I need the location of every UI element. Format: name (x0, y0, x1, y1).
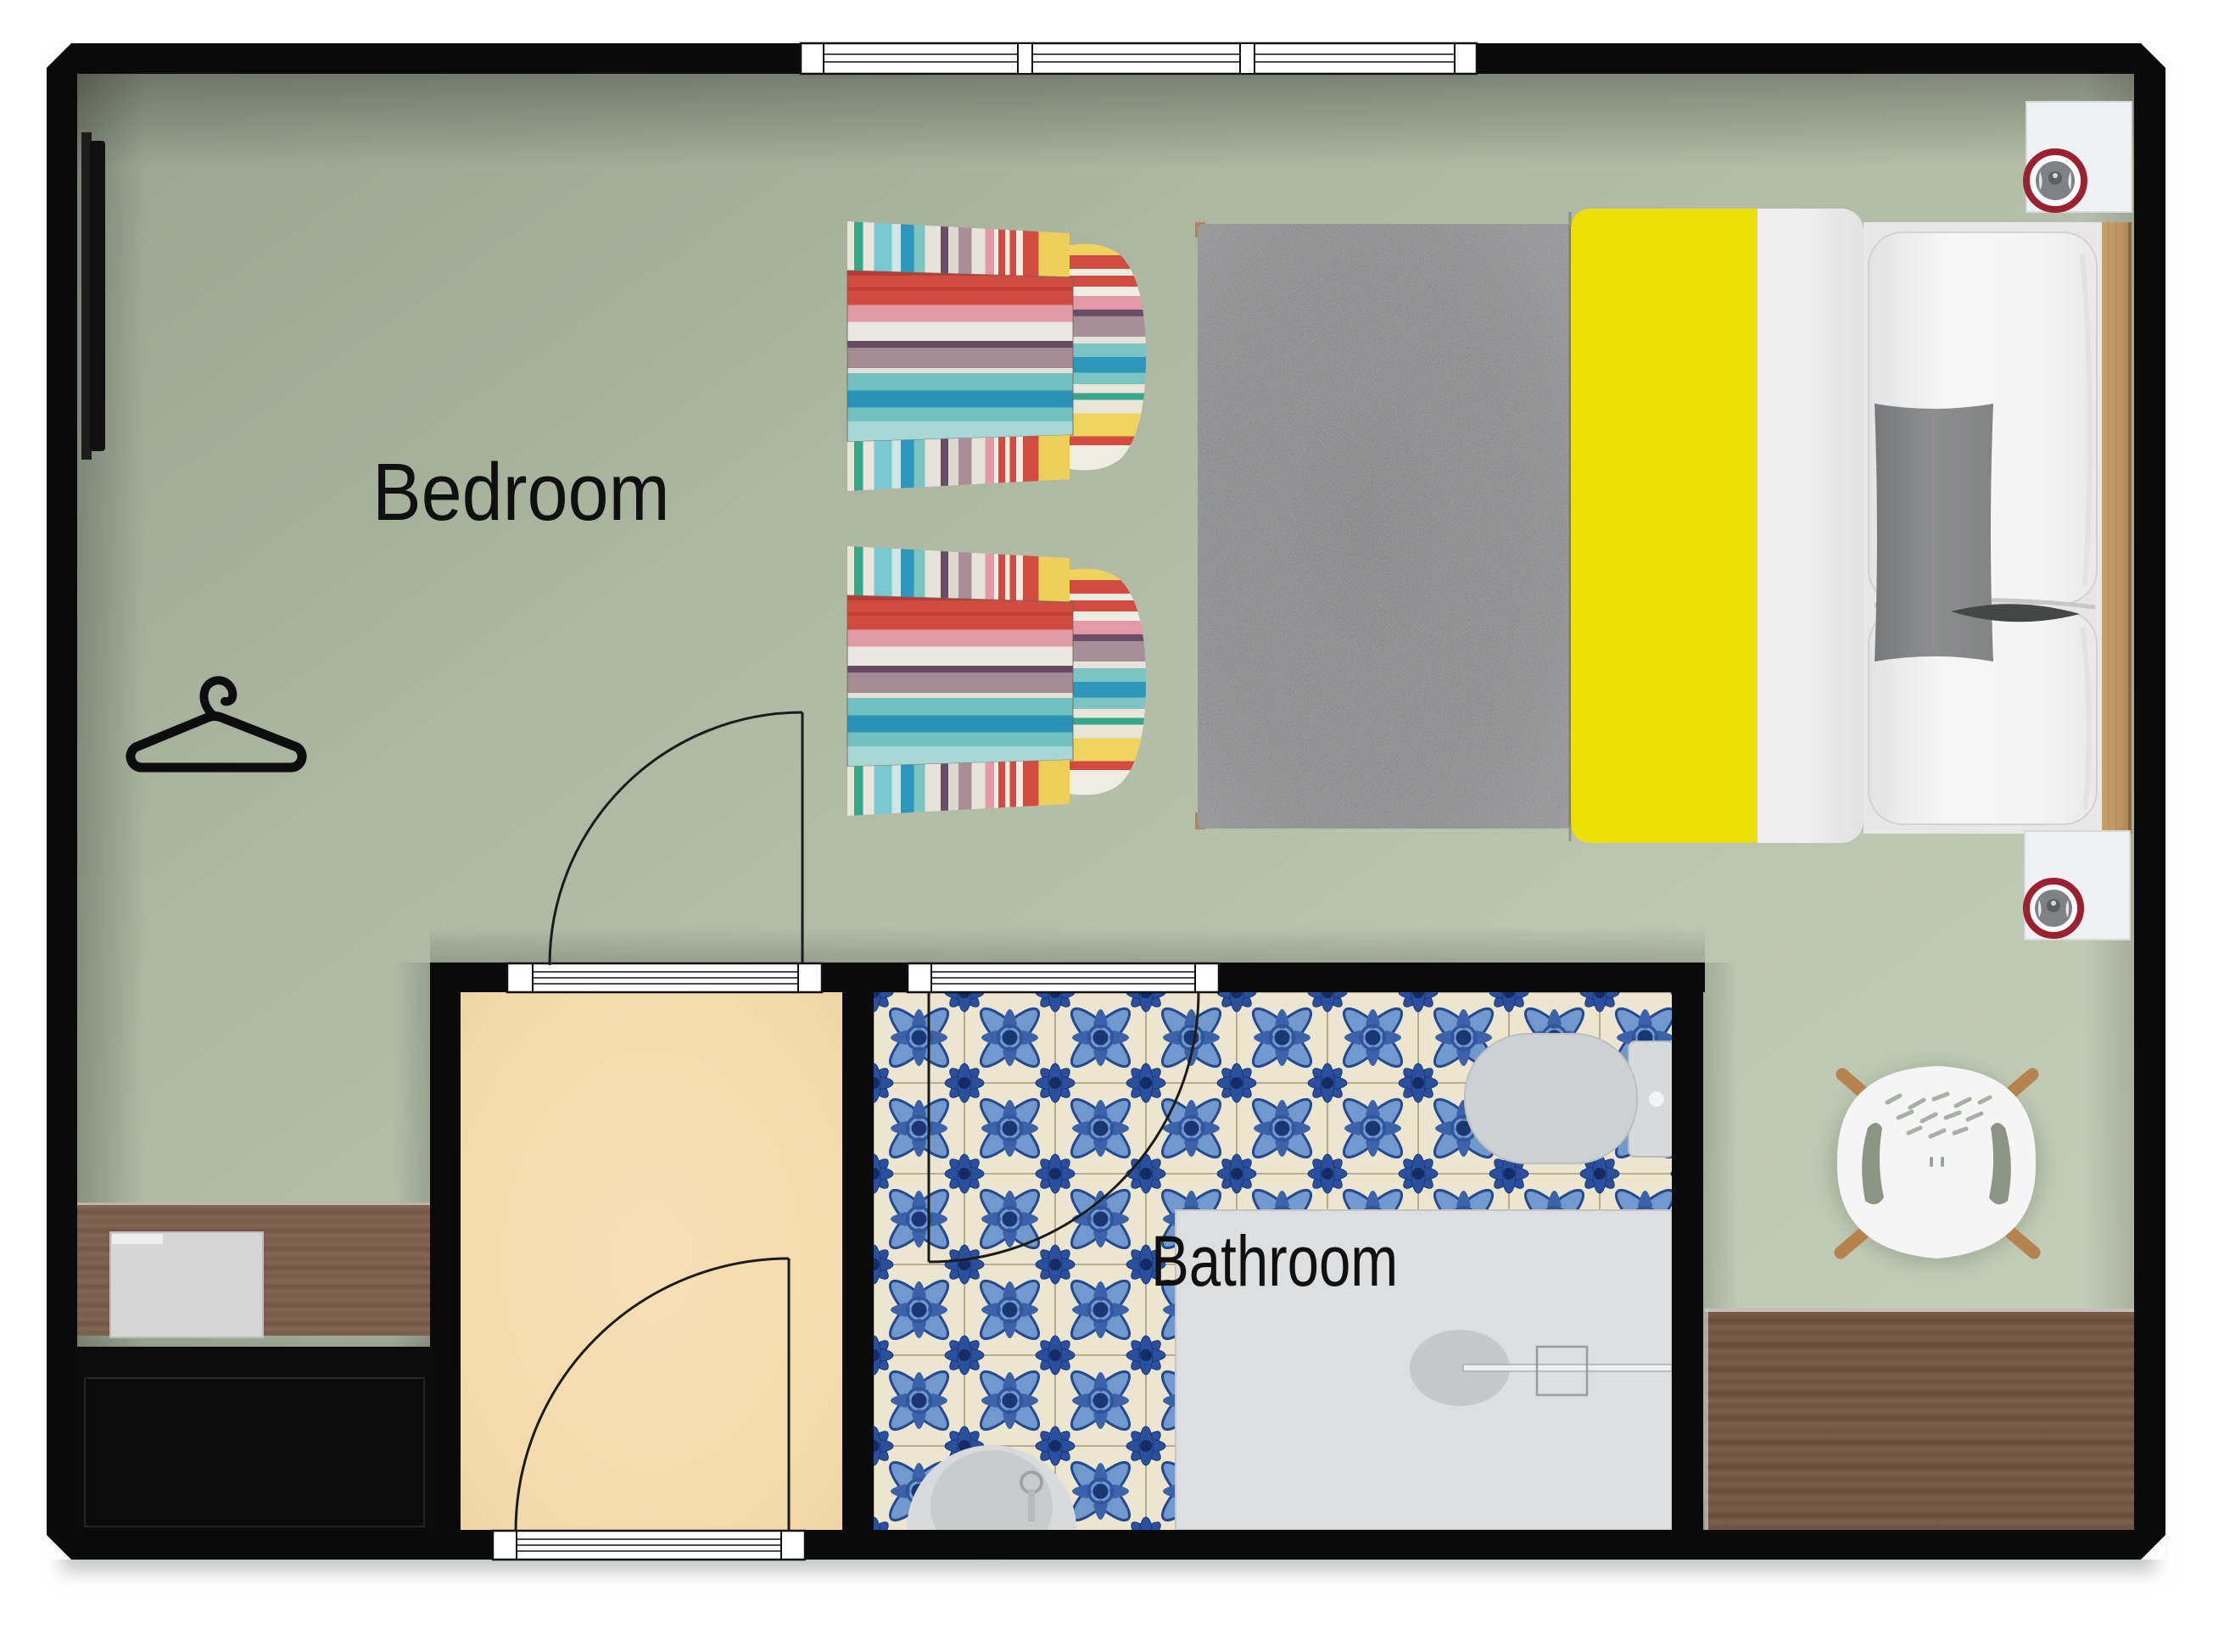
svg-text:Bathroom: Bathroom (1151, 1222, 1398, 1302)
svg-text:Bedroom: Bedroom (372, 447, 670, 538)
